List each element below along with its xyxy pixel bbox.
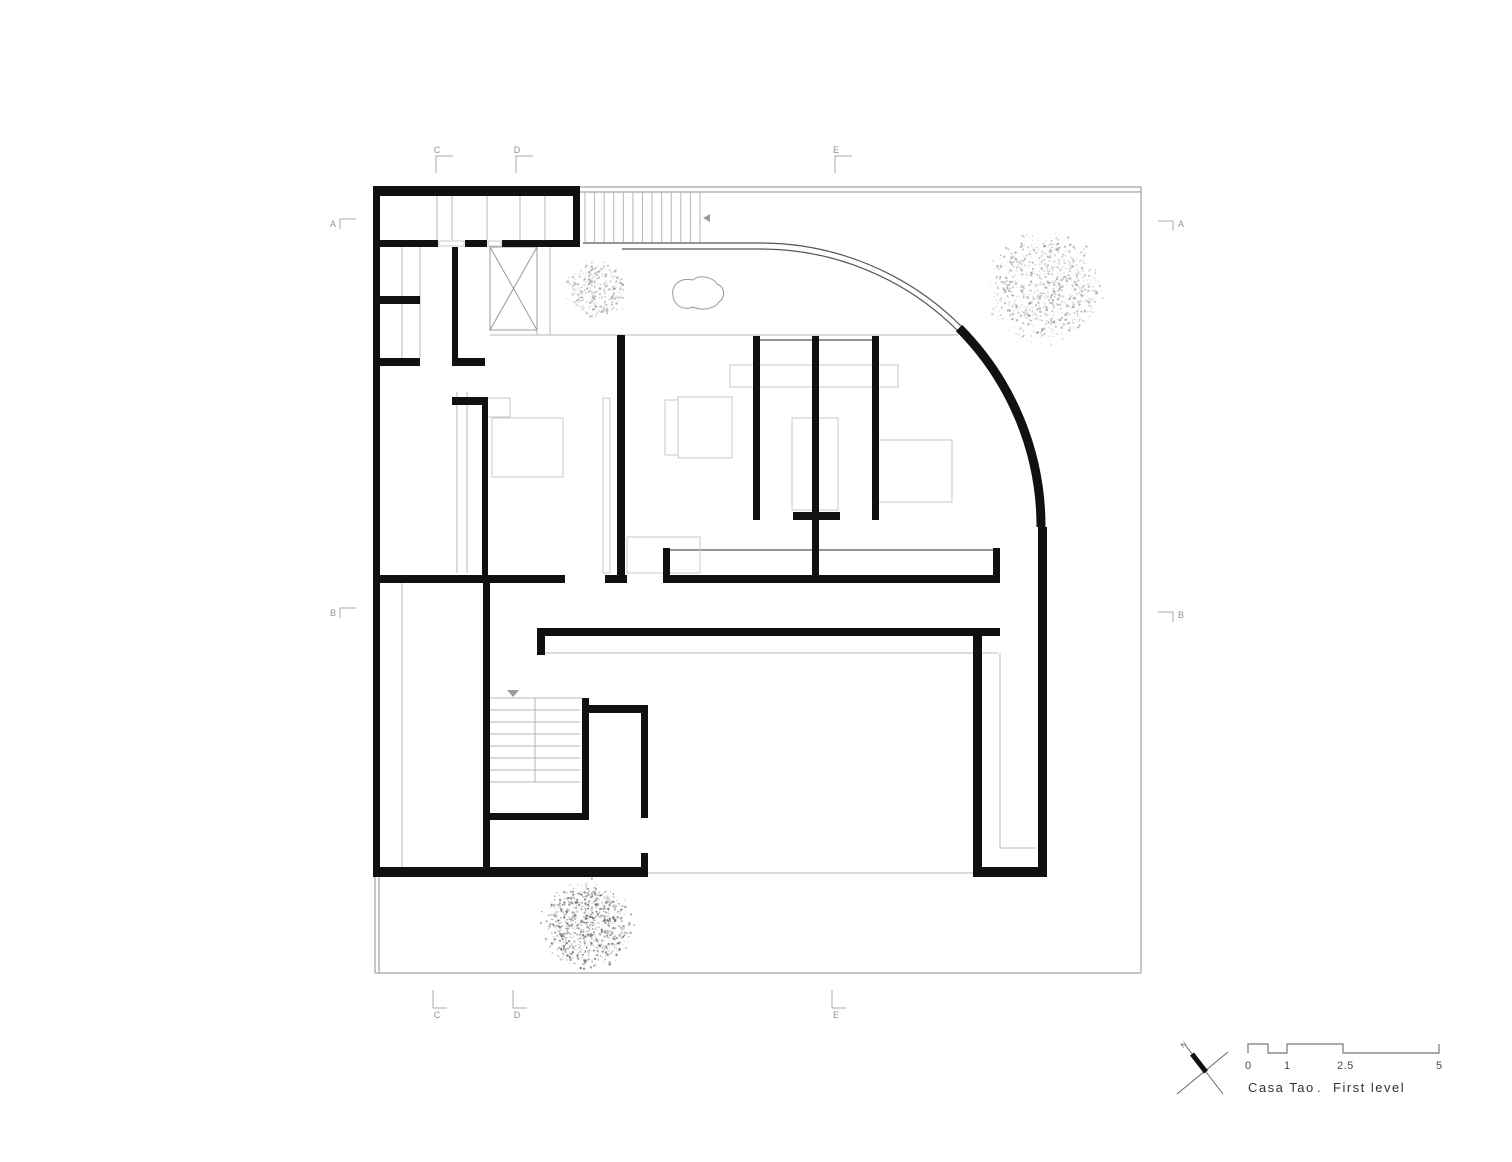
svg-text:E: E [833,145,839,155]
drawing-sheet: ABABCDECDE N 012.55 Casa Tao . First lev… [0,0,1512,1162]
title-block: N 012.55 Casa Tao . First level [1177,1041,1443,1095]
svg-text:E: E [833,1010,839,1020]
tree-canopy [990,232,1104,345]
north-arrow-icon [1177,1046,1228,1094]
grid-marker-c: C [434,145,453,173]
svg-text:B: B [1178,610,1184,620]
svg-text:C: C [434,145,441,155]
scale-label: 0 [1245,1060,1252,1072]
grid-marker-e: E [832,990,846,1020]
svg-text:D: D [514,145,521,155]
plan-geometry [373,186,1141,973]
tree-canopy [540,878,635,970]
north-label: N [1180,1041,1188,1050]
grid-marker-d: D [513,990,527,1020]
scale-bar: 012.55 [1245,1044,1443,1072]
grid-marker-a: A [1158,219,1184,231]
grid-marker-b: B [1158,610,1184,622]
grid-marker-d: D [514,145,533,173]
tree-canopy [566,262,625,319]
grid-marker-e: E [833,145,852,173]
grid-marker-c: C [433,990,447,1020]
scale-label: 2.5 [1337,1060,1354,1072]
svg-text:C: C [434,1010,441,1020]
scale-label: 1 [1284,1060,1291,1072]
grid-marker-b: B [330,608,356,618]
svg-text:A: A [330,219,336,229]
scale-label: 5 [1436,1060,1443,1072]
svg-text:D: D [514,1010,521,1020]
svg-text:B: B [330,608,336,618]
svg-text:A: A [1178,219,1184,229]
floor-plan-svg: ABABCDECDE N 012.55 Casa Tao . First lev… [0,0,1512,1162]
drawing-title: Casa Tao . First level [1248,1080,1405,1095]
grid-marker-a: A [330,219,356,229]
